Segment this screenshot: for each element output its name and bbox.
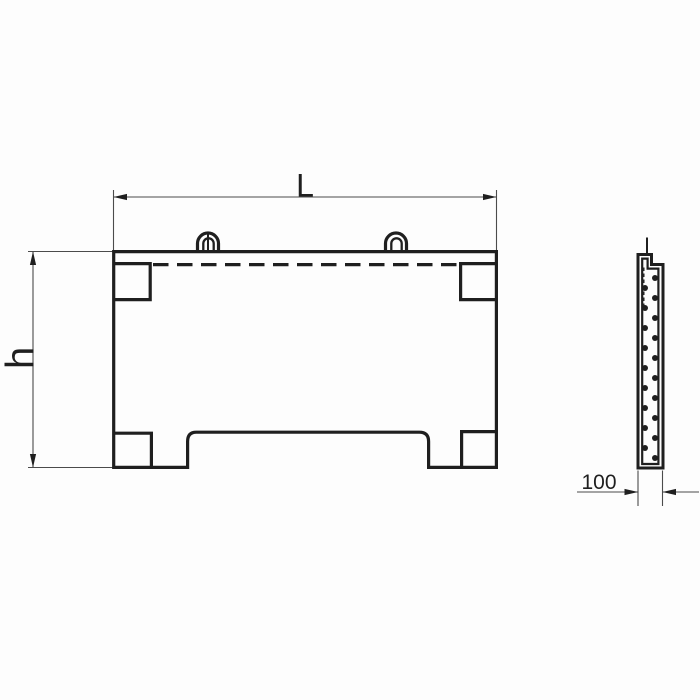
side-view <box>638 238 663 469</box>
rebar-dot <box>642 285 648 291</box>
corner-recess-top-left <box>114 264 151 300</box>
rebar-dot <box>642 405 648 411</box>
rebar-dot <box>652 315 658 321</box>
rebar-dot <box>642 425 648 431</box>
rebar-dot <box>652 455 658 461</box>
rebar-dot <box>652 275 658 281</box>
corner-recess-top-right <box>461 264 497 300</box>
dimension-lines <box>28 190 699 506</box>
thickness-dimension-label: 100 <box>581 471 616 494</box>
rebar-dot <box>642 305 648 311</box>
rebar-dot <box>652 395 658 401</box>
panel-outline <box>114 252 497 468</box>
lifting-loop-right <box>386 233 407 252</box>
rebar-dot <box>652 435 658 441</box>
length-dimension-label: L <box>296 168 314 204</box>
rebar-dot <box>642 365 648 371</box>
rebar-dot <box>652 415 658 421</box>
corner-recess-bottom-left <box>114 433 152 467</box>
rebar-dot <box>652 295 658 301</box>
lifting-loop-left <box>198 233 219 252</box>
arrowhead-thickness-right-icon <box>663 489 677 495</box>
lifting-loop-inner <box>391 238 401 251</box>
rebar-dot <box>652 355 658 361</box>
arrowhead-left-icon <box>114 194 128 200</box>
arrowhead-thickness-left-icon <box>625 489 639 495</box>
rebar-dots <box>642 275 658 461</box>
front-view <box>114 233 497 467</box>
technical-drawing-page: L h 100 <box>0 0 700 700</box>
rebar-dot <box>642 445 648 451</box>
arrowhead-up-icon <box>30 252 36 266</box>
corner-recess-bottom-right <box>462 432 497 468</box>
rebar-dot <box>642 345 648 351</box>
rebar-dot <box>642 385 648 391</box>
rebar-dot <box>652 375 658 381</box>
lifting-loop-outer <box>386 233 407 252</box>
dimension-arrowheads <box>30 194 676 495</box>
height-dimension-label: h <box>0 347 43 369</box>
rebar-dot <box>652 335 658 341</box>
arrowhead-down-icon <box>30 454 36 468</box>
arrowhead-right-icon <box>483 194 497 200</box>
rebar-dot <box>642 325 648 331</box>
drawing-canvas: L h 100 <box>0 0 700 700</box>
dimension-labels: L h 100 <box>0 168 617 495</box>
